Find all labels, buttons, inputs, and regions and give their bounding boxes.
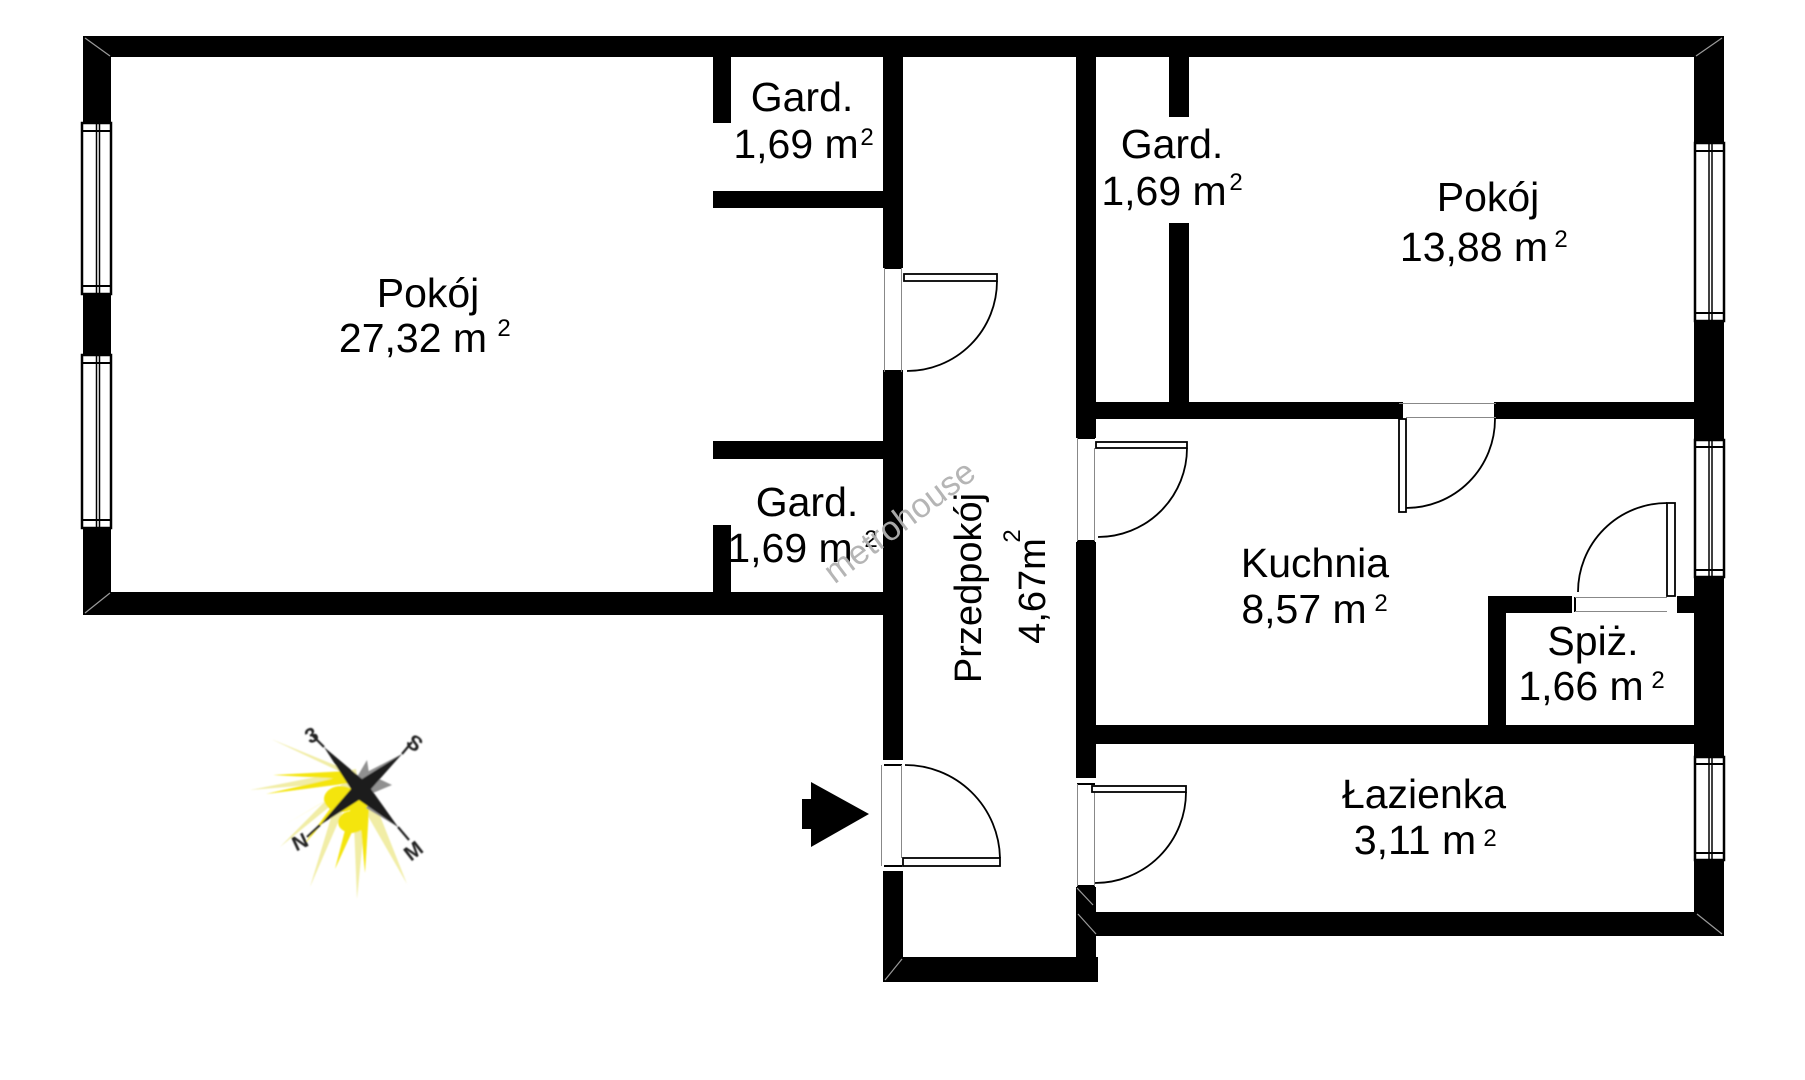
svg-text:Kuchnia: Kuchnia: [1241, 540, 1389, 586]
svg-text:1,69 m: 1,69 m: [1101, 168, 1226, 214]
svg-text:Gard.: Gard.: [751, 74, 854, 120]
svg-text:13,88 m: 13,88 m: [1400, 224, 1548, 270]
svg-text:8,57 m: 8,57 m: [1241, 586, 1366, 632]
svg-text:3,11 m: 3,11 m: [1354, 817, 1476, 863]
svg-text:2: 2: [1554, 226, 1567, 253]
svg-text:2: 2: [1651, 667, 1664, 694]
svg-text:Pokój: Pokój: [377, 270, 480, 316]
svg-text:2: 2: [860, 124, 873, 151]
svg-text:2: 2: [1483, 825, 1496, 852]
svg-text:Łazienka: Łazienka: [1342, 771, 1506, 817]
svg-text:Przedpokój: Przedpokój: [948, 493, 990, 683]
svg-text:Gard.: Gard.: [1121, 121, 1224, 167]
svg-text:4,67m: 4,67m: [1012, 538, 1054, 644]
svg-text:1,69 m: 1,69 m: [733, 121, 858, 167]
svg-text:2: 2: [999, 529, 1026, 542]
svg-text:2: 2: [497, 315, 510, 342]
svg-text:1,66 m: 1,66 m: [1518, 663, 1643, 709]
svg-text:Spiż.: Spiż.: [1547, 618, 1638, 664]
svg-text:Gard.: Gard.: [756, 479, 859, 525]
svg-text:2: 2: [1374, 590, 1387, 617]
svg-text:Pokój: Pokój: [1437, 174, 1540, 220]
svg-text:2: 2: [1229, 169, 1242, 196]
svg-text:27,32 m: 27,32 m: [339, 315, 487, 361]
